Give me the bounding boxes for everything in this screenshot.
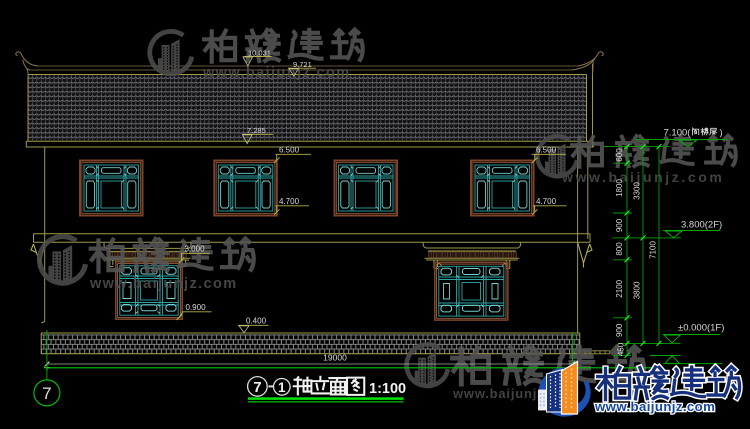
svg-text:19000: 19000 [323, 353, 347, 363]
svg-text:): ) [720, 128, 723, 139]
svg-text:9.721: 9.721 [293, 60, 312, 69]
svg-text:7.285: 7.285 [247, 126, 266, 135]
svg-text:7: 7 [42, 384, 51, 403]
svg-text:4.700: 4.700 [279, 197, 300, 206]
svg-text:600: 600 [615, 148, 624, 162]
svg-text:1: 1 [278, 380, 286, 395]
svg-text:7: 7 [253, 379, 261, 396]
svg-text:6.500: 6.500 [279, 146, 300, 155]
svg-text:2100: 2100 [615, 279, 624, 297]
svg-text:www.baijunjz.com: www.baijunjz.com [89, 276, 238, 292]
svg-text:1800: 1800 [615, 179, 624, 197]
svg-text:0.900: 0.900 [186, 303, 207, 312]
svg-text:0.400: 0.400 [246, 317, 267, 326]
svg-text:3800: 3800 [633, 281, 642, 299]
svg-text:www.baijunjz.com: www.baijunjz.com [594, 399, 715, 414]
svg-text:3.000: 3.000 [185, 245, 206, 254]
svg-text:450: 450 [617, 342, 626, 356]
svg-text:www.baijunjz.com: www.baijunjz.com [202, 65, 351, 81]
svg-text:900: 900 [615, 218, 624, 232]
svg-text:3.800(2F): 3.800(2F) [681, 220, 722, 231]
svg-text:3300: 3300 [633, 182, 642, 200]
svg-text:800: 800 [615, 242, 624, 256]
svg-text:4.700: 4.700 [536, 197, 557, 206]
svg-text:1:100: 1:100 [369, 381, 406, 397]
svg-text:900: 900 [615, 323, 624, 337]
svg-text:6.500: 6.500 [536, 146, 557, 155]
svg-text:±0.000(1F): ±0.000(1F) [678, 323, 724, 334]
svg-text:7100: 7100 [649, 241, 658, 259]
svg-text:7.100(: 7.100( [664, 128, 692, 139]
